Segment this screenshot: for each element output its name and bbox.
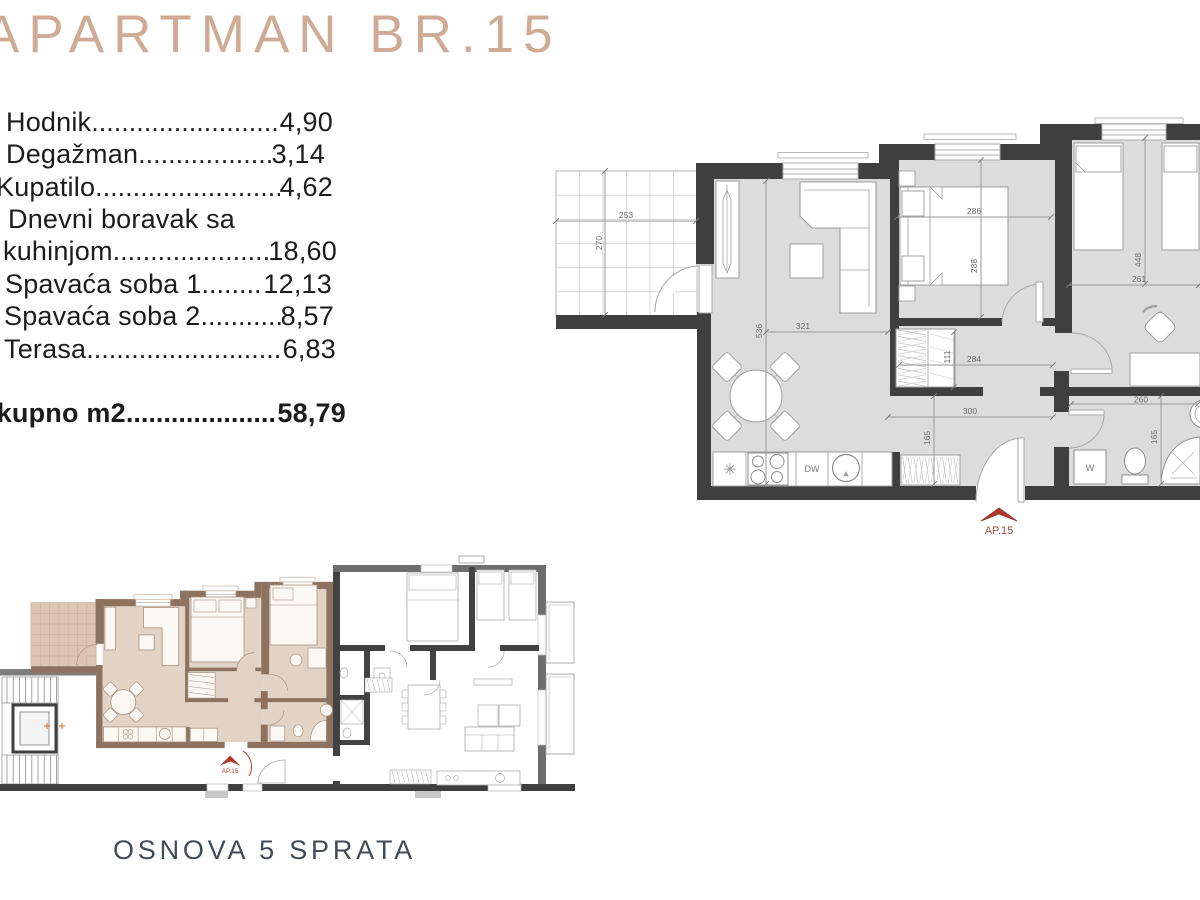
svg-text:DW: DW — [805, 464, 820, 474]
svg-text:300: 300 — [963, 406, 977, 416]
svg-text:111: 111 — [942, 350, 952, 363]
svg-text:536: 536 — [754, 324, 764, 338]
svg-text:W: W — [1086, 463, 1095, 473]
svg-text:AP.15: AP.15 — [222, 768, 239, 775]
svg-text:253: 253 — [619, 210, 633, 220]
svg-text:288: 288 — [969, 259, 979, 273]
svg-text:448: 448 — [1133, 253, 1143, 267]
svg-text:165: 165 — [1149, 430, 1159, 444]
svg-text:286: 286 — [967, 206, 981, 216]
svg-text:260: 260 — [1134, 395, 1148, 405]
svg-text:284: 284 — [967, 354, 981, 364]
svg-text:261: 261 — [1132, 274, 1146, 284]
svg-text:321: 321 — [796, 321, 810, 331]
svg-text:165: 165 — [922, 431, 932, 445]
svg-text:AP.15: AP.15 — [985, 525, 1014, 537]
svg-text:270: 270 — [594, 236, 604, 250]
